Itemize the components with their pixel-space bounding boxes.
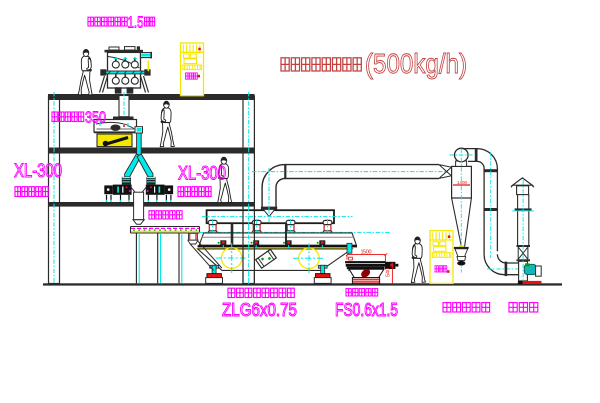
svg-text:XL-300: XL-300 xyxy=(14,160,62,182)
svg-text:540: 540 xyxy=(386,268,392,277)
svg-text:XL-300: XL-300 xyxy=(178,163,226,185)
svg-text:1400: 1400 xyxy=(457,180,468,185)
svg-text:(500kg/h): (500kg/h) xyxy=(365,48,467,79)
svg-text:1.5: 1.5 xyxy=(128,15,144,32)
svg-text:350: 350 xyxy=(85,110,106,127)
svg-text:ZLG6x0.75: ZLG6x0.75 xyxy=(222,300,297,320)
svg-text:1500: 1500 xyxy=(361,250,372,256)
svg-text:FS0.6x1.5: FS0.6x1.5 xyxy=(335,300,398,320)
